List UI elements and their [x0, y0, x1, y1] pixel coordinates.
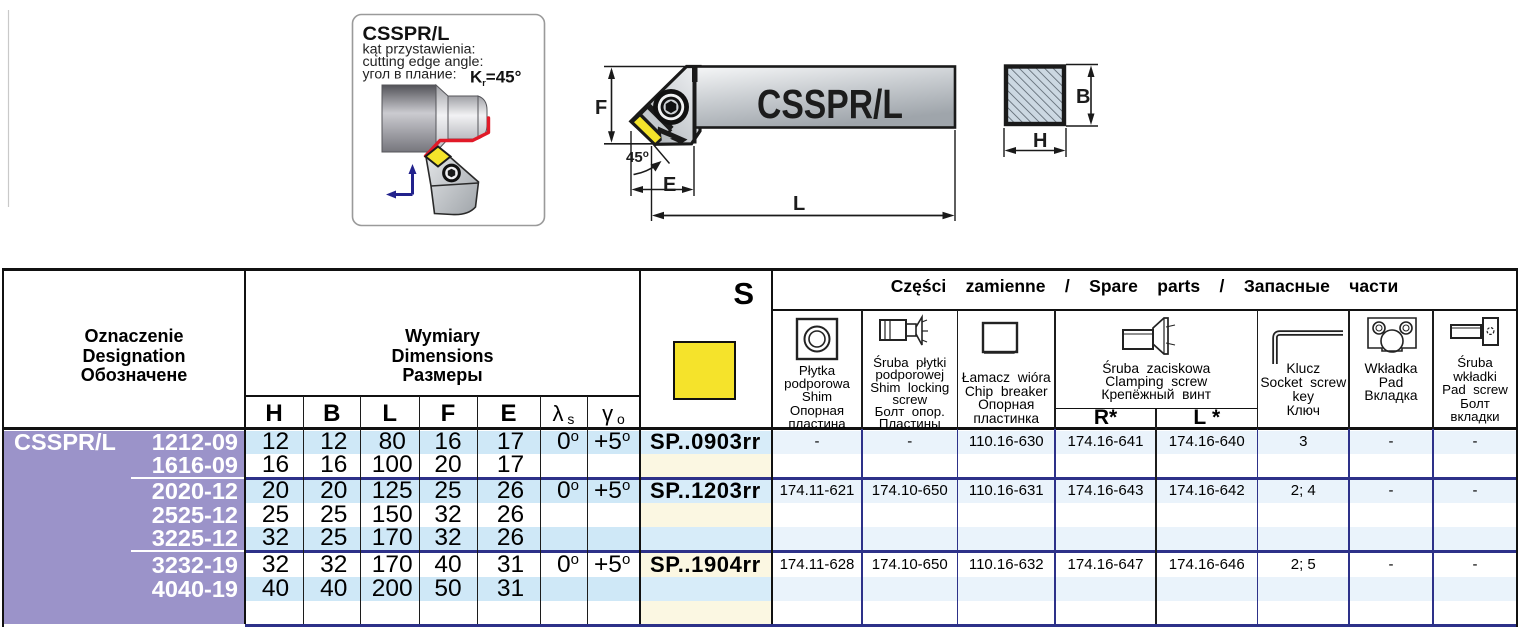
svg-text:B: B [1076, 86, 1090, 108]
svg-text:E: E [663, 174, 676, 196]
svg-text:Kr=45°: Kr=45° [470, 68, 522, 89]
svg-text:F: F [595, 97, 607, 119]
svg-text:H: H [1033, 130, 1047, 152]
svg-text:45o: 45o [626, 149, 649, 166]
svg-text:L: L [793, 193, 805, 215]
svg-text:угол в плание:: угол в плание: [363, 67, 457, 82]
svg-text:CSSPR/L: CSSPR/L [757, 81, 903, 127]
